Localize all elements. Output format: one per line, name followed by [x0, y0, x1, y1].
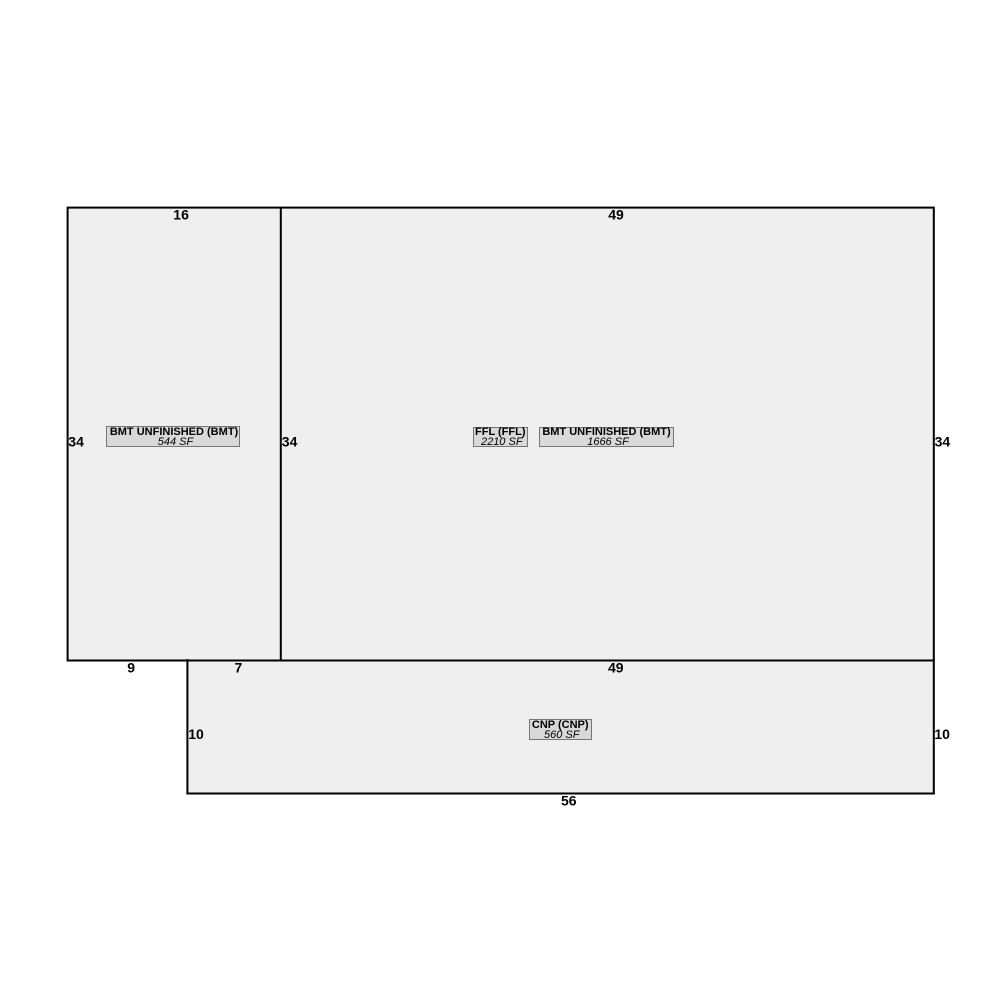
svg-text:16: 16: [173, 207, 189, 223]
svg-text:10: 10: [188, 726, 204, 742]
svg-text:7: 7: [235, 660, 243, 676]
svg-text:10: 10: [934, 726, 950, 742]
svg-text:34: 34: [282, 434, 298, 450]
svg-text:49: 49: [608, 660, 624, 676]
svg-text:34: 34: [68, 434, 84, 450]
svg-text:9: 9: [127, 660, 135, 676]
svg-text:56: 56: [561, 793, 577, 809]
svg-text:49: 49: [608, 207, 624, 223]
svg-text:34: 34: [935, 434, 951, 450]
